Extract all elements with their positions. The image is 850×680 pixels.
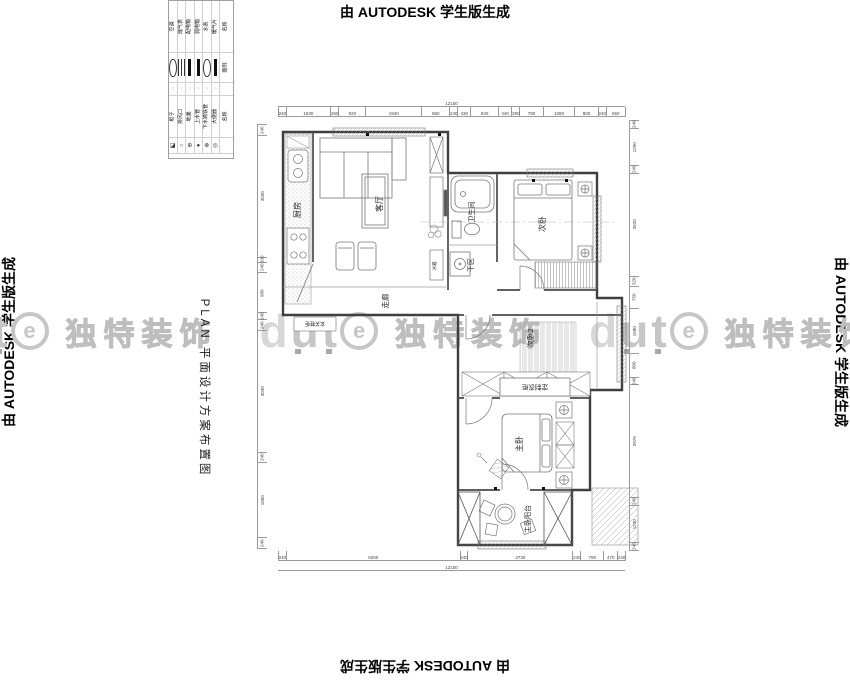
wall-dots xyxy=(366,133,568,490)
room-label-balcony: 主卧阳台 xyxy=(523,505,532,533)
castiron-pipe-symbol-icon: ⊗ xyxy=(204,143,209,149)
washbasin xyxy=(450,252,470,276)
toilet xyxy=(452,221,480,238)
legend-item: 空调 xyxy=(170,21,175,31)
room-label-kitchen: 厨房 xyxy=(292,202,302,218)
panel-symbol-icon xyxy=(188,59,191,76)
legend-names-row: 空调 煤气表 配电箱 弱电箱 水表 暖气片 名称 xyxy=(169,1,233,53)
dot-icon: ○ xyxy=(205,87,208,92)
room-label-master: 主卧 xyxy=(514,436,524,452)
armchairs xyxy=(336,242,376,270)
room-label-bedroom2: 次卧 xyxy=(537,216,547,232)
cabinet-symbol-icon: ◪ xyxy=(170,143,176,149)
chair-master xyxy=(477,453,509,479)
water-meter-symbol-icon xyxy=(203,59,211,77)
legend-item: 水表 xyxy=(204,21,209,31)
door-bedroom3 xyxy=(466,315,490,339)
legend-item: 排风口 xyxy=(179,109,184,124)
pipe-symbol-icon: ● xyxy=(196,143,200,149)
sofa xyxy=(320,138,406,198)
legend-symbol-header: 图例 xyxy=(224,62,229,72)
legend-item: 配电箱 xyxy=(187,19,192,34)
legend-item: 弱电箱 xyxy=(196,19,201,34)
legend-name-header: 名称 xyxy=(224,111,229,121)
plan-title: PLAN 平面设计方案布置图 xyxy=(197,299,213,478)
kitchen-stove xyxy=(287,228,309,264)
drawing-sheet: d u t e 独特装饰 d u t e 独特装饰 d u t e 独特装饰 xyxy=(0,0,850,680)
legend-symbols-row: 图例 xyxy=(169,53,233,83)
dot-icon: ○ xyxy=(197,87,200,92)
room-label-fridge: 冰箱 xyxy=(431,261,438,270)
legend-item: 下水铸铁管 xyxy=(204,104,209,129)
toilet-symbol-icon: ◎ xyxy=(213,143,218,149)
interior-walls xyxy=(313,132,622,490)
legend-item: 暖气片 xyxy=(213,19,218,34)
balcony-window-boxes xyxy=(458,492,572,545)
dot-icon: ○ xyxy=(171,87,174,92)
room-label-wardrobe: 定制衣柜 xyxy=(522,383,549,392)
vent-symbol-icon: ○ xyxy=(179,143,183,149)
floor-plan-svg: 玄关鞋柜 定制衣柜 xyxy=(0,0,850,680)
gas-meter-symbol-icon xyxy=(178,59,186,76)
nightstands-bedroom2 xyxy=(578,182,592,260)
bed-master xyxy=(502,414,552,472)
ac-symbol-icon xyxy=(169,59,177,77)
legend-item: 大便器 xyxy=(213,109,218,124)
dot-icon: ○ xyxy=(180,87,183,92)
terrace-hatch xyxy=(592,488,638,545)
room-label-bedroom3: 次卧2 xyxy=(525,328,535,347)
tv-wall-cabinets xyxy=(430,137,447,280)
closet-bedroom2 xyxy=(535,262,597,288)
legend-names-row-2: 柜子 排风口 地漏 上水管 下水铸铁管 大便器 名称 xyxy=(169,96,233,138)
room-label-dry-area: 干区 xyxy=(467,258,475,272)
legend-symbols-row-2: ◪ ○ ⊕ ● ⊗ ◎ xyxy=(169,138,233,154)
legend-item: 柜子 xyxy=(170,111,175,121)
legend-name-header: 名称 xyxy=(224,21,229,31)
room-label-corridor: 走廊 xyxy=(380,293,390,308)
room-label-shoe-cabinet: 玄关鞋柜 xyxy=(305,320,325,327)
room-label-bathroom: 卫生间 xyxy=(467,202,476,223)
drain-symbol-icon: ⊕ xyxy=(187,143,192,149)
legend-item: 煤气表 xyxy=(179,19,184,34)
legend-item: 地漏 xyxy=(187,111,192,121)
kitchen-sink xyxy=(288,150,308,182)
room-label-living: 客厅 xyxy=(374,196,384,212)
legend-table: 空调 煤气表 配电箱 弱电箱 水表 暖气片 名称 图例 ○ ○ ○ ○ ○ ○ xyxy=(168,0,234,159)
dot-icon: ○ xyxy=(214,87,217,92)
wardrobe-master xyxy=(556,422,574,468)
radiator-symbol-icon xyxy=(214,59,217,76)
panel-symbol-icon xyxy=(197,59,200,76)
legend-dots-row: ○ ○ ○ ○ ○ ○ xyxy=(169,83,233,96)
legend-item: 上水管 xyxy=(196,109,201,124)
dot-icon: ○ xyxy=(188,87,191,92)
